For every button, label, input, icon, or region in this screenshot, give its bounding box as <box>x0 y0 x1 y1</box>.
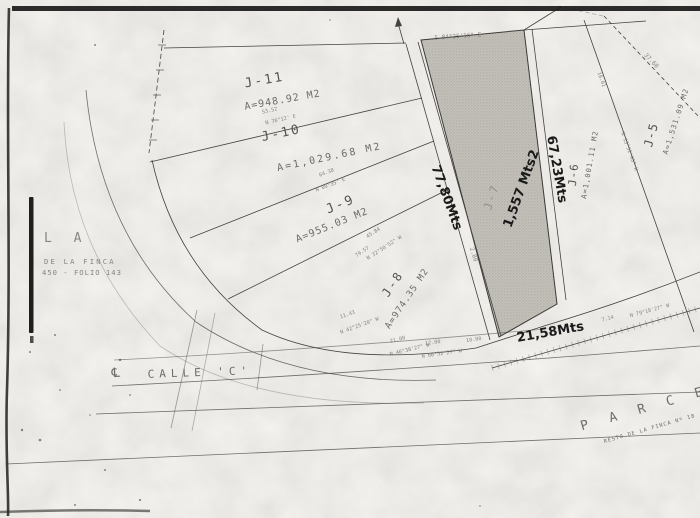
scanned-survey-plat: J-11 A=948.92 M2 J-10 A=1,029.68 M2 J-9 … <box>0 0 700 518</box>
margin-line1: L A <box>44 231 88 246</box>
margin-black-bar-blob <box>30 336 34 343</box>
scan-top-edge-bar <box>12 6 700 11</box>
margin-line3: 450 - FOLIO 143 <box>42 268 122 277</box>
parcel-j6-id: J-6 <box>566 163 581 187</box>
margin-line2: DE LA FINCA <box>44 257 116 266</box>
margin-black-bar <box>29 197 34 333</box>
centerline-symbol: ℄ <box>110 366 121 382</box>
plat-drawing: J-11 A=948.92 M2 J-10 A=1,029.68 M2 J-9 … <box>0 0 700 518</box>
